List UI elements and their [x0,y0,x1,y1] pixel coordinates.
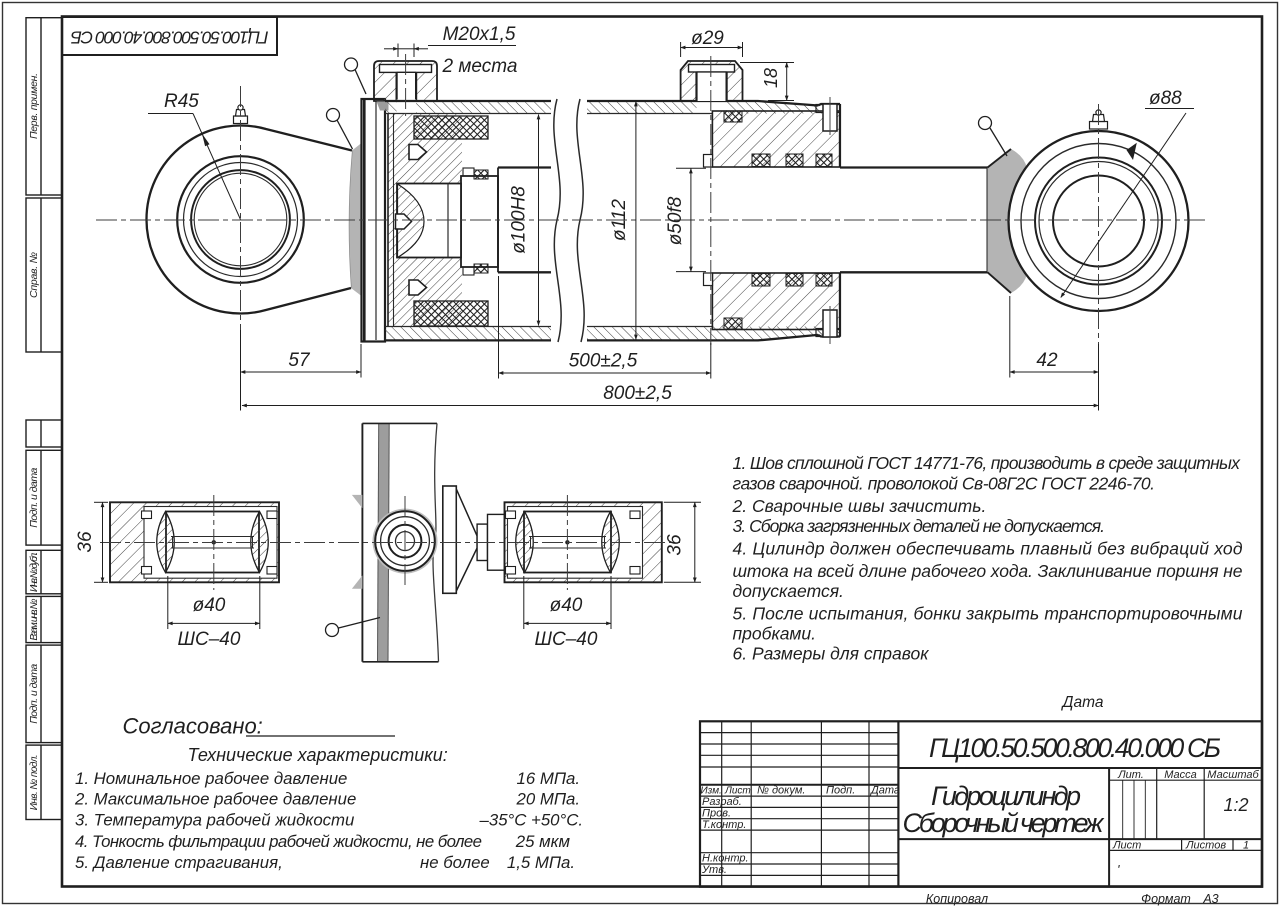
svg-text:M20х1,5: M20х1,5 [443,24,516,45]
svg-text:Масштаб: Масштаб [1207,769,1259,781]
svg-text:Гидроцилиндр: Гидроцилиндр [931,781,1081,811]
svg-text:42: 42 [1036,350,1058,371]
svg-text:2 места: 2 места [442,56,518,77]
svg-text:Копировал: Копировал [926,892,988,906]
svg-text:Инв. № подл.: Инв. № подл. [29,754,40,810]
svg-text:57: 57 [288,350,311,371]
svg-text:R45: R45 [164,91,199,112]
svg-text:1. Номинальное рабочее давлени: 1. Номинальное рабочее давление [75,769,347,788]
svg-text:20 МПа.: 20 МПа. [516,790,580,809]
svg-text:Взам. инв. №: Взам. инв. № [29,598,40,640]
svg-text:Сборочный чертеж: Сборочный чертеж [903,808,1105,838]
svg-text:допускается.: допускается. [733,581,844,601]
svg-text:штока на всей длине рабочего х: штока на всей длине рабочего хода. Закли… [733,561,1243,581]
svg-text:5. Давление страгивания,: 5. Давление страгивания, [75,853,283,872]
svg-text:16 МПа.: 16 МПа. [517,769,580,788]
svg-text:2. Максимальное рабочее давлен: 2. Максимальное рабочее давление [74,790,356,809]
svg-text:ø88: ø88 [1149,88,1182,109]
svg-text:Справ. №: Справ. № [28,252,40,298]
svg-text:2. Сварочные швы зачистить.: 2. Сварочные швы зачистить. [732,496,987,516]
svg-text:36: 36 [75,531,96,553]
svg-text:ø40: ø40 [550,595,583,616]
svg-text:Дата: Дата [869,785,900,797]
svg-text:Масса: Масса [1164,769,1197,781]
svg-text:1: 1 [1243,840,1249,852]
svg-text:Изм.: Изм. [701,786,722,797]
svg-text:Пров.: Пров. [702,807,731,819]
svg-text:газов сварочной. проволокой Св: газов сварочной. проволокой Св-08Г2С ГОС… [733,474,1156,494]
svg-text:500±2,5: 500±2,5 [569,351,638,372]
svg-text:ø112: ø112 [609,199,630,241]
svg-text:25 мкм: 25 мкм [515,832,571,851]
svg-text:Согласовано:: Согласовано: [123,714,263,739]
svg-text:Утв.: Утв. [701,864,727,876]
svg-text:ШС–40: ШС–40 [178,629,241,650]
svg-text:3. Температура рабочей жидкост: 3. Температура рабочей жидкости [75,811,354,830]
svg-text:5. После испытания, бонки з: 5. После испытания, бонки закрыть трансп… [733,604,1243,624]
svg-text:Формат: Формат [1141,892,1191,906]
svg-text:Лист: Лист [724,786,751,797]
svg-text:ø29: ø29 [691,28,724,49]
svg-text:№ докум.: № докум. [757,785,805,797]
svg-text:800±2,5: 800±2,5 [603,383,672,404]
svg-text:Подп. и дата: Подп. и дата [28,468,40,528]
svg-text:ø40: ø40 [193,595,226,616]
svg-text:ГЦ100.50.500.800.40.000 СБ: ГЦ100.50.500.800.40.000 СБ [929,733,1221,763]
svg-text:3. Сборка загрязненных деталей: 3. Сборка загрязненных деталей не допуск… [733,516,1106,536]
svg-text:пробками.: пробками. [733,624,817,644]
svg-text:1:2: 1:2 [1223,795,1248,815]
svg-text:Н.контр.: Н.контр. [702,853,749,865]
svg-text:Лист: Лист [1112,840,1141,852]
svg-text:6. Размеры для справок: 6. Размеры для справок [733,644,930,664]
svg-text:Дата: Дата [1061,694,1104,711]
svg-text:4. Цилиндр должен обеспечивать: 4. Цилиндр должен обеспечивать плавный б… [733,539,1243,559]
svg-text:18: 18 [761,68,781,88]
svg-text:1,5 МПа.: 1,5 МПа. [507,853,575,872]
svg-text:А3: А3 [1202,892,1218,906]
svg-text:1. Шов сплошной ГОСТ 14771-76: 1. Шов сплошной ГОСТ 14771-76, производи… [733,453,1242,473]
svg-text:Листов: Листов [1185,840,1226,852]
svg-text:ШС–40: ШС–40 [535,629,598,650]
svg-text:Лит.: Лит. [1117,769,1144,781]
svg-text:ø100Н8: ø100Н8 [509,186,530,254]
svg-text:Перв. примен.: Перв. примен. [28,73,40,139]
svg-text:ø50f8: ø50f8 [665,196,686,245]
svg-text:ГЦ100.50.500.800.40.000 СБ: ГЦ100.50.500.800.40.000 СБ [71,27,269,47]
svg-text:Подп. и дата: Подп. и дата [28,664,40,724]
svg-text:4. Тонкость фильтрации рабочей: 4. Тонкость фильтрации рабочей жидкости,… [75,832,482,851]
svg-text:': ' [1117,862,1120,877]
svg-text:–35°С +50°С.: –35°С +50°С. [479,811,583,830]
svg-text:Технические характеристики:: Технические характеристики: [188,745,448,765]
svg-text:Подп.: Подп. [826,785,855,797]
svg-text:Т.контр.: Т.контр. [702,819,746,831]
svg-text:не более: не более [420,853,490,872]
svg-text:36: 36 [665,534,686,556]
svg-text:Разраб.: Разраб. [702,796,742,808]
svg-text:Инв. № дубл.: Инв. № дубл. [28,552,40,592]
